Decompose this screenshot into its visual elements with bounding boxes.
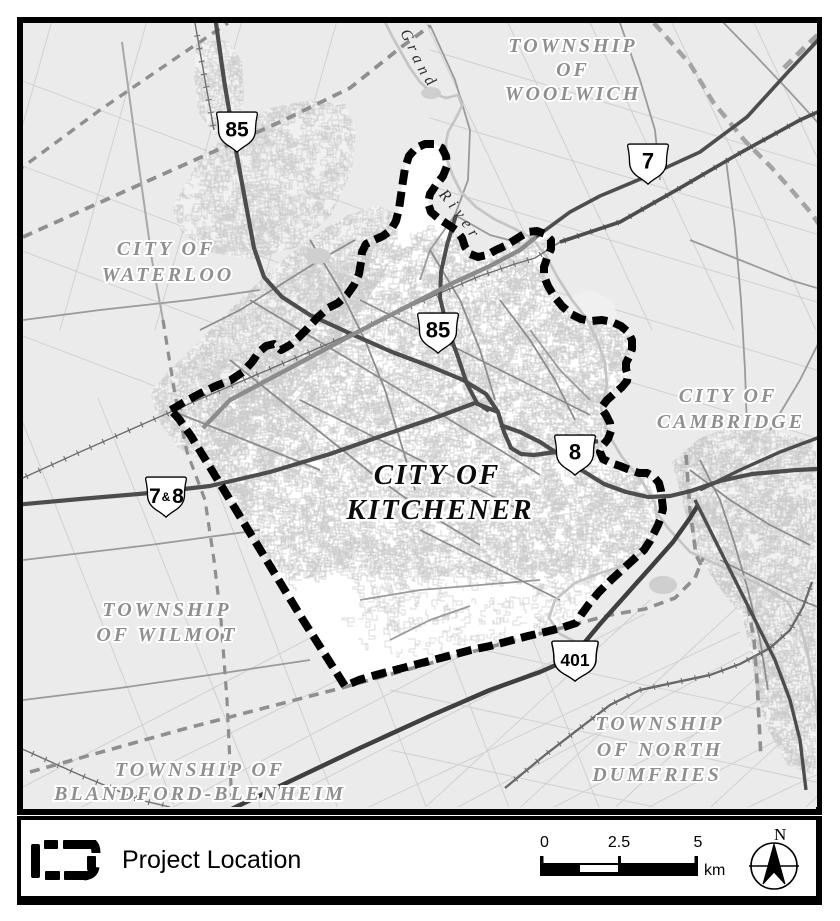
svg-text:85: 85 — [426, 318, 450, 343]
svg-text:OF NORTH: OF NORTH — [597, 739, 723, 761]
svg-text:River: River — [435, 185, 485, 244]
svg-text:5: 5 — [694, 834, 703, 851]
svg-text:BLANDFORD-BLENHEIM: BLANDFORD-BLENHEIM — [53, 783, 346, 805]
svg-text:WATERLOO: WATERLOO — [102, 264, 235, 286]
svg-text:WOOLWICH: WOOLWICH — [505, 83, 642, 105]
svg-text:&: & — [162, 490, 171, 504]
svg-text:7: 7 — [149, 485, 161, 508]
svg-text:CITY OF: CITY OF — [679, 385, 778, 407]
svg-text:OF: OF — [556, 59, 590, 81]
svg-text:km: km — [704, 862, 725, 879]
svg-text:85: 85 — [225, 119, 249, 142]
svg-text:TOWNSHIP OF: TOWNSHIP OF — [115, 759, 285, 781]
svg-text:KITCHENER: KITCHENER — [345, 494, 533, 526]
svg-text:8: 8 — [172, 485, 184, 508]
svg-text:TOWNSHIP: TOWNSHIP — [595, 713, 724, 735]
svg-text:7: 7 — [642, 149, 654, 174]
svg-text:OF WILMOT: OF WILMOT — [96, 624, 237, 646]
svg-text:CITY OF: CITY OF — [374, 459, 501, 491]
svg-text:CITY OF: CITY OF — [117, 238, 216, 260]
svg-text:N: N — [774, 825, 786, 844]
svg-text:401: 401 — [560, 650, 589, 670]
svg-text:Grand: Grand — [397, 27, 442, 94]
svg-text:8: 8 — [569, 440, 581, 465]
svg-text:2.5: 2.5 — [608, 834, 630, 851]
svg-text:0: 0 — [540, 834, 549, 851]
svg-text:DUMFRIES: DUMFRIES — [591, 764, 722, 786]
svg-text:TOWNSHIP: TOWNSHIP — [508, 35, 637, 57]
svg-text:CAMBRIDGE: CAMBRIDGE — [657, 411, 805, 433]
svg-text:TOWNSHIP: TOWNSHIP — [102, 599, 231, 621]
